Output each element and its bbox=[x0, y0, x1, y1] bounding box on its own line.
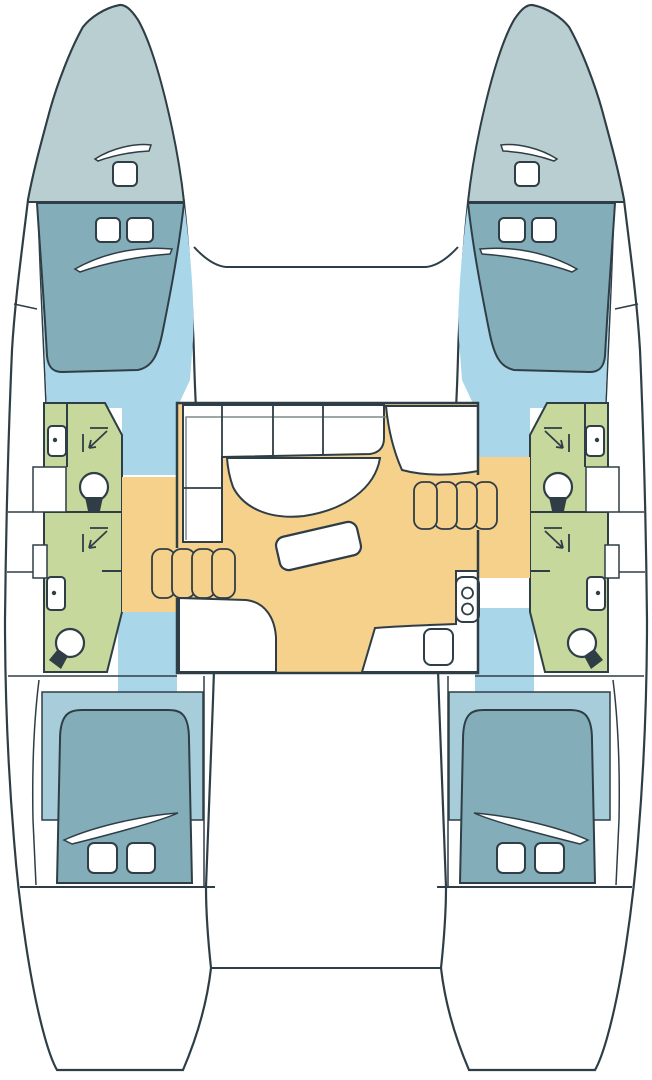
washbasin-forward-drain-starboard bbox=[595, 438, 599, 442]
forward-cabin-hatch-1-port bbox=[96, 218, 120, 242]
washbasin-forward-drain-port bbox=[53, 438, 57, 442]
aft-cabin-hatch-1-starboard bbox=[535, 843, 564, 873]
side-locker-2-port bbox=[33, 545, 47, 578]
bow-hatch-port bbox=[113, 162, 137, 186]
forward-cabin-hatch-1-starboard bbox=[532, 218, 556, 242]
galley-sink-bowl-2 bbox=[462, 604, 473, 615]
washbasin-aft-drain-starboard bbox=[596, 591, 600, 595]
step-port-4 bbox=[212, 549, 235, 598]
galley-sink-bowl-1 bbox=[462, 588, 473, 599]
bow-deck-port bbox=[28, 5, 184, 202]
side-locker-1-starboard bbox=[586, 467, 619, 512]
aft-port-seat bbox=[179, 598, 276, 672]
bow-deck-starboard bbox=[468, 5, 624, 202]
aft-cabin-hatch-1-port bbox=[88, 843, 117, 873]
washbasin-forward-port bbox=[48, 426, 66, 456]
forward-cabin-hatch-2-starboard bbox=[499, 218, 525, 242]
forward-cabin-hatch-2-port bbox=[127, 218, 153, 242]
washbasin-forward-starboard bbox=[586, 426, 604, 456]
floor-plan-canvas bbox=[0, 0, 652, 1080]
toilet-forward-starboard bbox=[544, 473, 572, 501]
aft-cabin-hatch-2-starboard bbox=[497, 843, 525, 873]
forward-crossbeam bbox=[194, 247, 458, 267]
side-locker-1-port bbox=[33, 467, 66, 512]
hull-corridor-floor-starboard bbox=[475, 608, 534, 694]
toilet-forward-tank-port bbox=[85, 497, 103, 511]
galley-appliance bbox=[424, 629, 453, 665]
forward-starboard-seat bbox=[386, 406, 478, 475]
aft-berth-starboard bbox=[460, 710, 595, 883]
aft-berth-port bbox=[57, 710, 192, 883]
catamaran-floor-plan bbox=[0, 0, 652, 1080]
washbasin-aft-drain-port bbox=[52, 591, 56, 595]
aft-cabin-hatch-2-port bbox=[127, 843, 155, 873]
hull-corridor-floor-port bbox=[118, 608, 177, 694]
step-starboard-4 bbox=[414, 482, 437, 529]
toilet-forward-tank-starboard bbox=[549, 497, 567, 511]
toilet-forward-port bbox=[80, 473, 108, 501]
bow-hatch-starboard bbox=[515, 162, 539, 186]
side-locker-2-starboard bbox=[605, 545, 619, 578]
